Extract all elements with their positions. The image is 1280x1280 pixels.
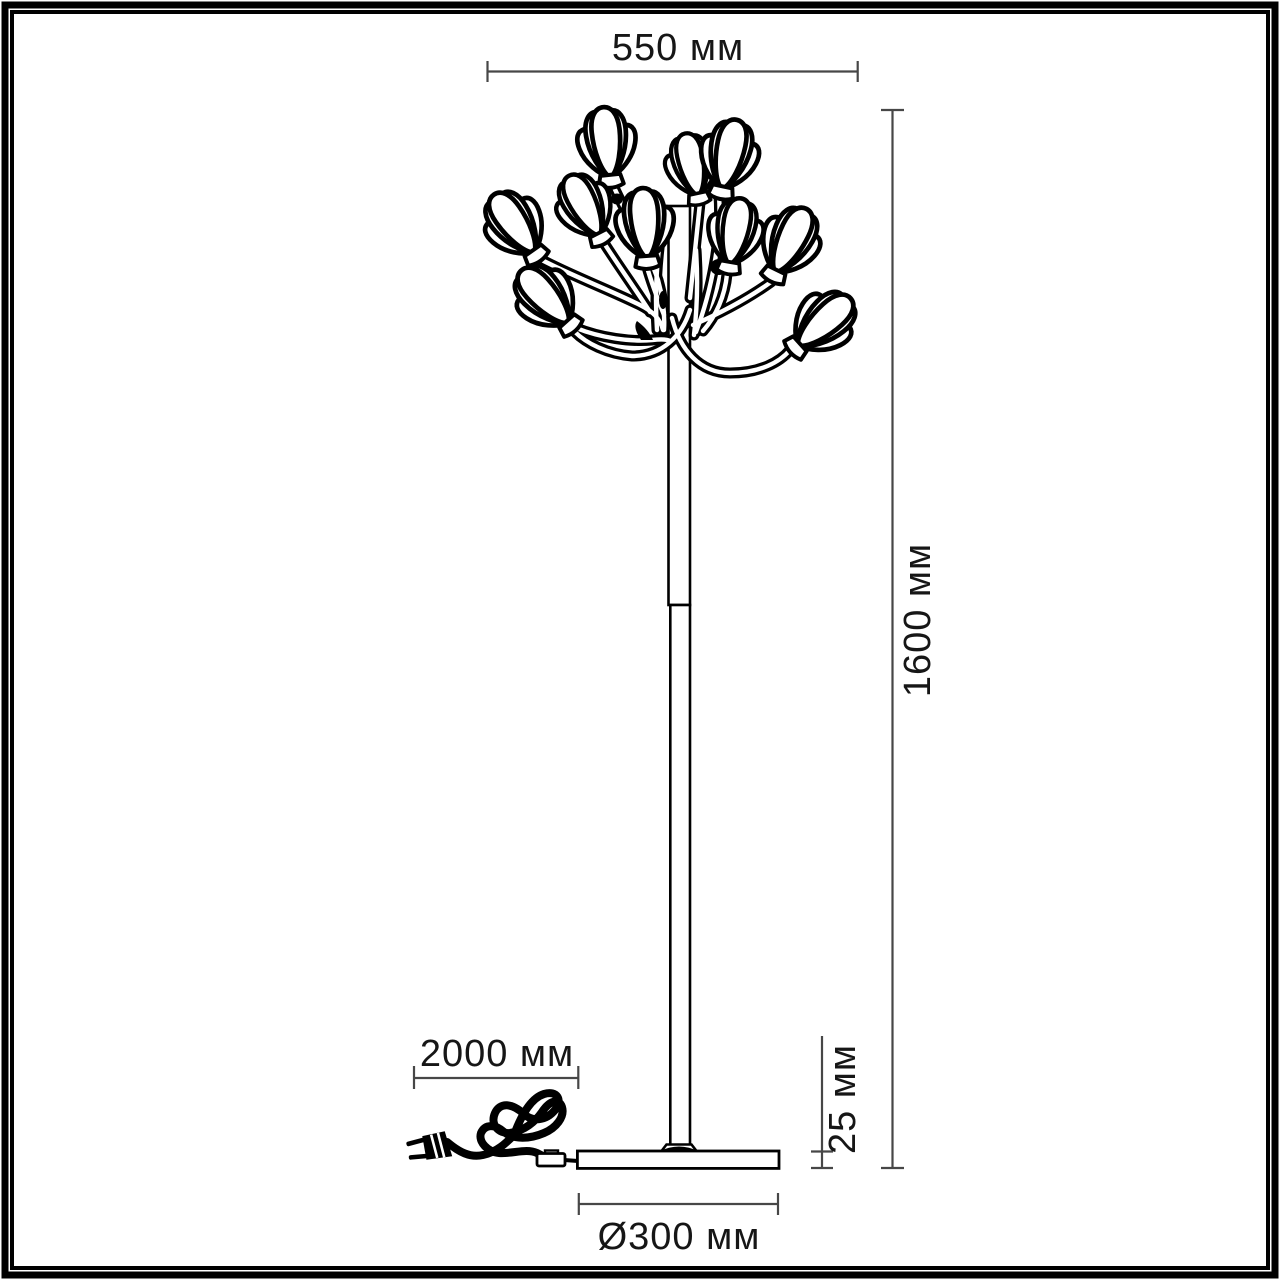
svg-text:550 мм: 550 мм (612, 27, 744, 69)
svg-text:2000 мм: 2000 мм (420, 1033, 574, 1075)
svg-text:25 мм: 25 мм (822, 1044, 864, 1154)
svg-text:1600 мм: 1600 мм (897, 543, 939, 697)
svg-text:Ø300 мм: Ø300 мм (598, 1216, 761, 1258)
